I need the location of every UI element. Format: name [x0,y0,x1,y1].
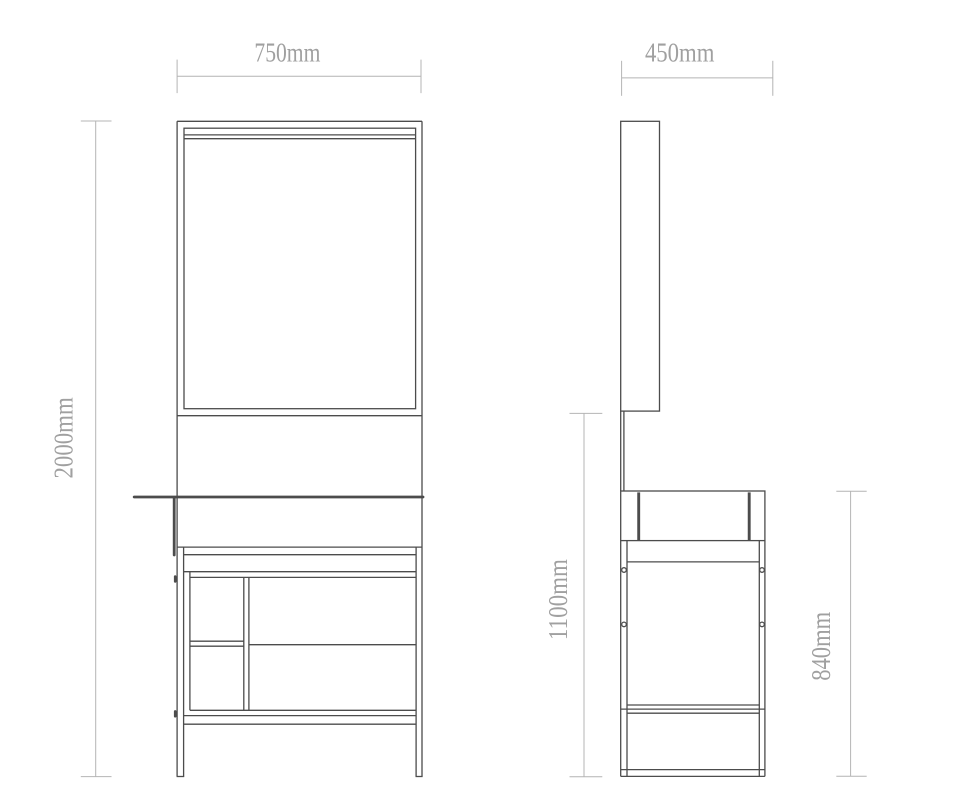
svg-text:840mm: 840mm [806,612,836,681]
svg-text:1100mm: 1100mm [543,559,573,640]
svg-text:450mm: 450mm [645,38,715,68]
svg-text:2000mm: 2000mm [49,397,79,478]
svg-text:750mm: 750mm [254,38,320,68]
